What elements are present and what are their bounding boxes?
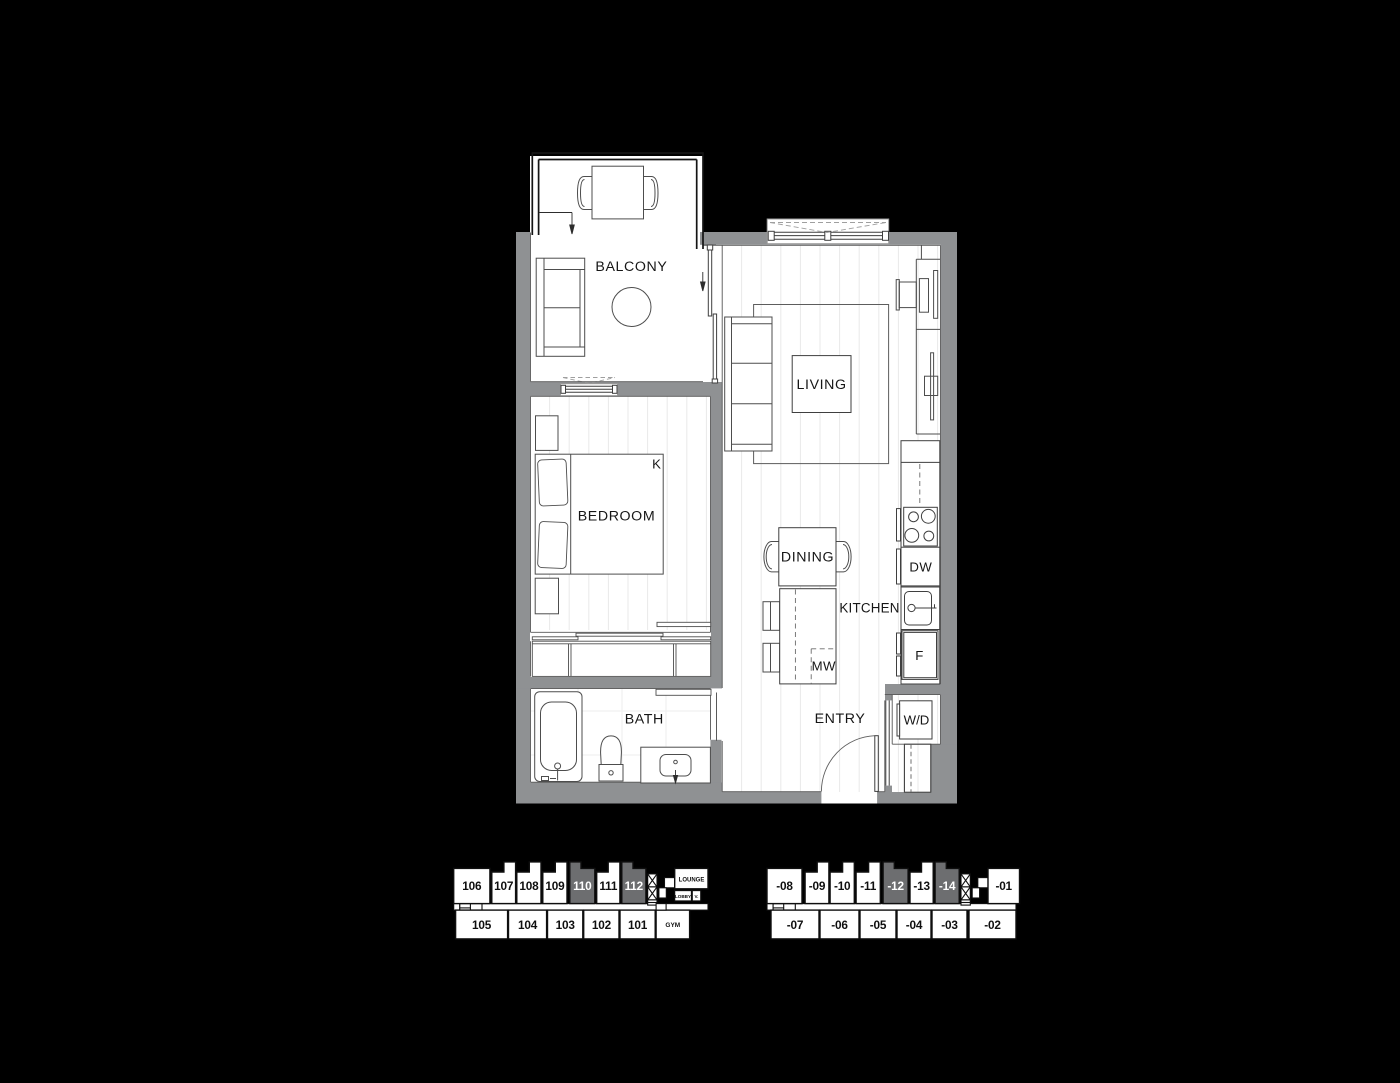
svg-text:-06: -06: [831, 918, 848, 932]
svg-text:-10: -10: [834, 879, 851, 893]
svg-text:-05: -05: [870, 918, 887, 932]
svg-text:106: 106: [462, 879, 482, 893]
svg-text:V.: V.: [695, 894, 699, 899]
svg-text:-02: -02: [984, 918, 1001, 932]
svg-text:-03: -03: [941, 918, 958, 932]
svg-text:-11: -11: [860, 879, 876, 893]
svg-text:107: 107: [494, 879, 514, 893]
svg-text:BATH: BATH: [625, 712, 664, 728]
svg-text:110: 110: [573, 879, 592, 893]
svg-text:ENTRY: ENTRY: [815, 711, 866, 727]
svg-text:105: 105: [472, 918, 492, 932]
svg-text:K: K: [652, 456, 661, 471]
svg-text:-04: -04: [906, 918, 923, 932]
svg-text:-01: -01: [995, 879, 1012, 893]
svg-text:DINING: DINING: [781, 550, 834, 566]
svg-text:108: 108: [519, 879, 539, 893]
svg-text:BALCONY: BALCONY: [595, 259, 667, 275]
svg-text:-08: -08: [776, 879, 793, 893]
svg-text:GYM: GYM: [665, 922, 680, 929]
svg-text:LIVING: LIVING: [797, 377, 847, 393]
svg-text:-07: -07: [787, 918, 804, 932]
svg-text:104: 104: [518, 918, 538, 932]
svg-text:-13: -13: [913, 879, 930, 893]
svg-text:BEDROOM: BEDROOM: [578, 508, 656, 524]
svg-text:W/D: W/D: [904, 713, 930, 728]
svg-text:KITCHEN: KITCHEN: [839, 601, 899, 616]
svg-text:101: 101: [628, 918, 648, 932]
svg-text:111: 111: [599, 879, 617, 893]
svg-text:-12: -12: [887, 879, 904, 893]
svg-text:-14: -14: [939, 879, 956, 893]
svg-text:102: 102: [592, 918, 612, 932]
svg-text:103: 103: [556, 918, 576, 932]
svg-text:LOBBY: LOBBY: [675, 894, 691, 899]
svg-text:MW: MW: [812, 659, 836, 674]
svg-text:109: 109: [545, 879, 565, 893]
svg-text:112: 112: [625, 879, 644, 893]
svg-text:F: F: [915, 648, 923, 663]
svg-text:-09: -09: [809, 879, 826, 893]
svg-text:LOUNGE: LOUNGE: [679, 877, 705, 883]
svg-text:DW: DW: [909, 560, 932, 575]
